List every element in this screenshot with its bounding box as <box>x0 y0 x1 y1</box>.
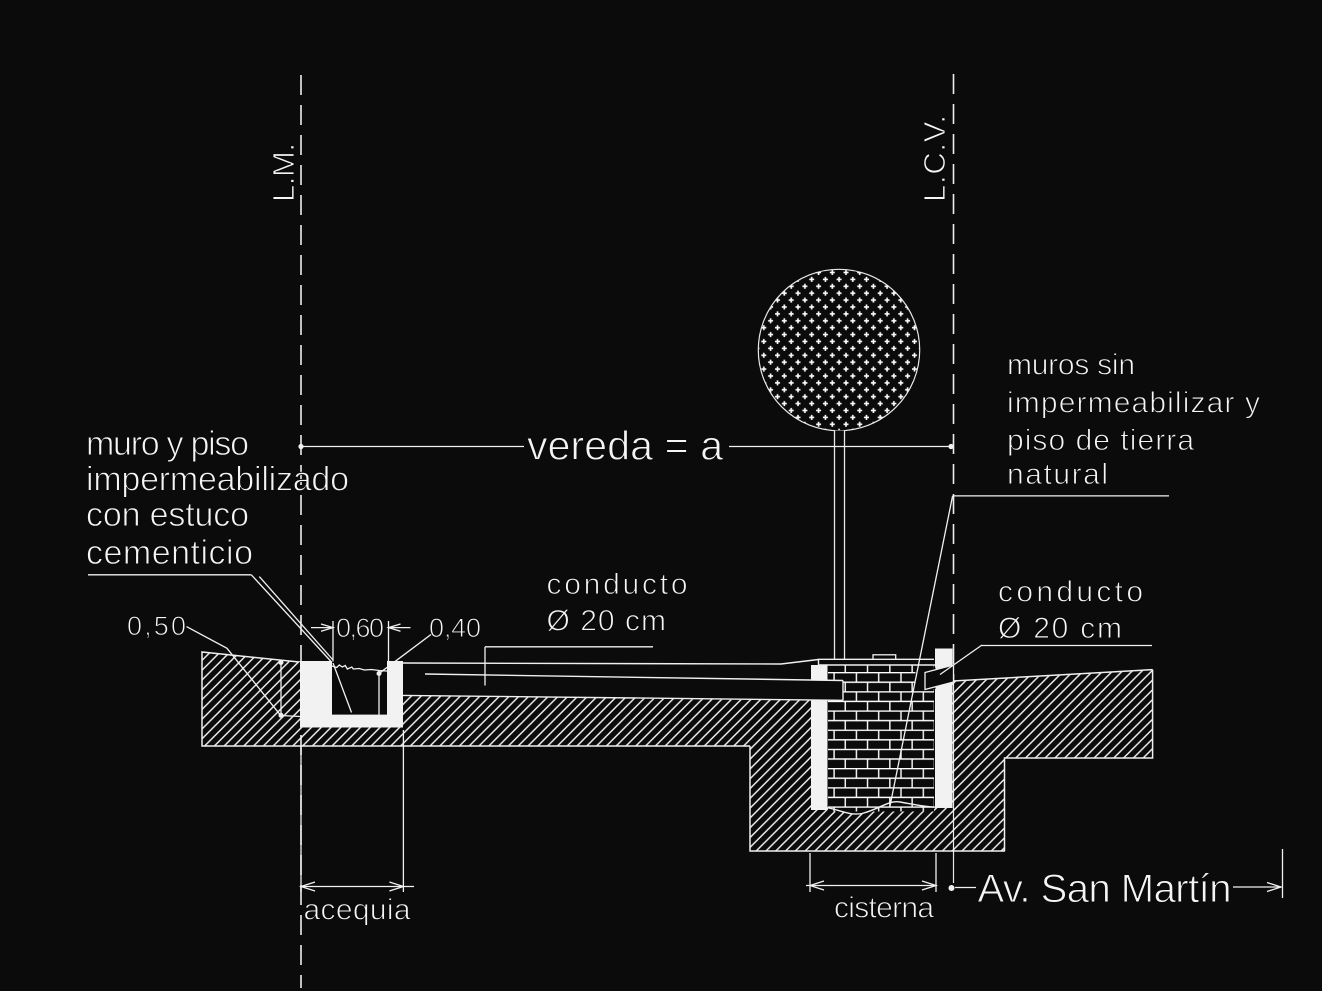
svg-text:0,60: 0,60 <box>336 613 384 643</box>
svg-text:Ø 20 cm: Ø 20 cm <box>998 612 1122 645</box>
svg-text:L.C.V.: L.C.V. <box>917 115 952 202</box>
svg-text:conducto: conducto <box>547 568 688 601</box>
svg-text:L.M.: L.M. <box>266 143 301 202</box>
svg-text:0,40: 0,40 <box>429 613 481 643</box>
svg-text:impermeabilizar y: impermeabilizar y <box>1007 387 1260 420</box>
svg-text:cementicio: cementicio <box>86 534 253 572</box>
svg-text:0,50: 0,50 <box>127 611 186 641</box>
svg-text:acequia: acequia <box>304 894 411 927</box>
svg-text:muro y piso: muro y piso <box>86 425 249 463</box>
svg-text:Av. San Martín: Av. San Martín <box>978 867 1232 911</box>
svg-text:natural: natural <box>1007 458 1108 491</box>
svg-text:Ø 20 cm: Ø 20 cm <box>547 605 667 638</box>
svg-text:muros sin: muros sin <box>1007 348 1135 381</box>
svg-text:impermeabilizado: impermeabilizado <box>86 460 349 498</box>
svg-text:piso de tierra: piso de tierra <box>1007 424 1194 457</box>
svg-text:cisterna: cisterna <box>834 892 934 925</box>
svg-text:con estuco: con estuco <box>86 496 249 534</box>
svg-text:vereda = a: vereda = a <box>527 423 723 469</box>
svg-text:conducto: conducto <box>998 576 1143 609</box>
